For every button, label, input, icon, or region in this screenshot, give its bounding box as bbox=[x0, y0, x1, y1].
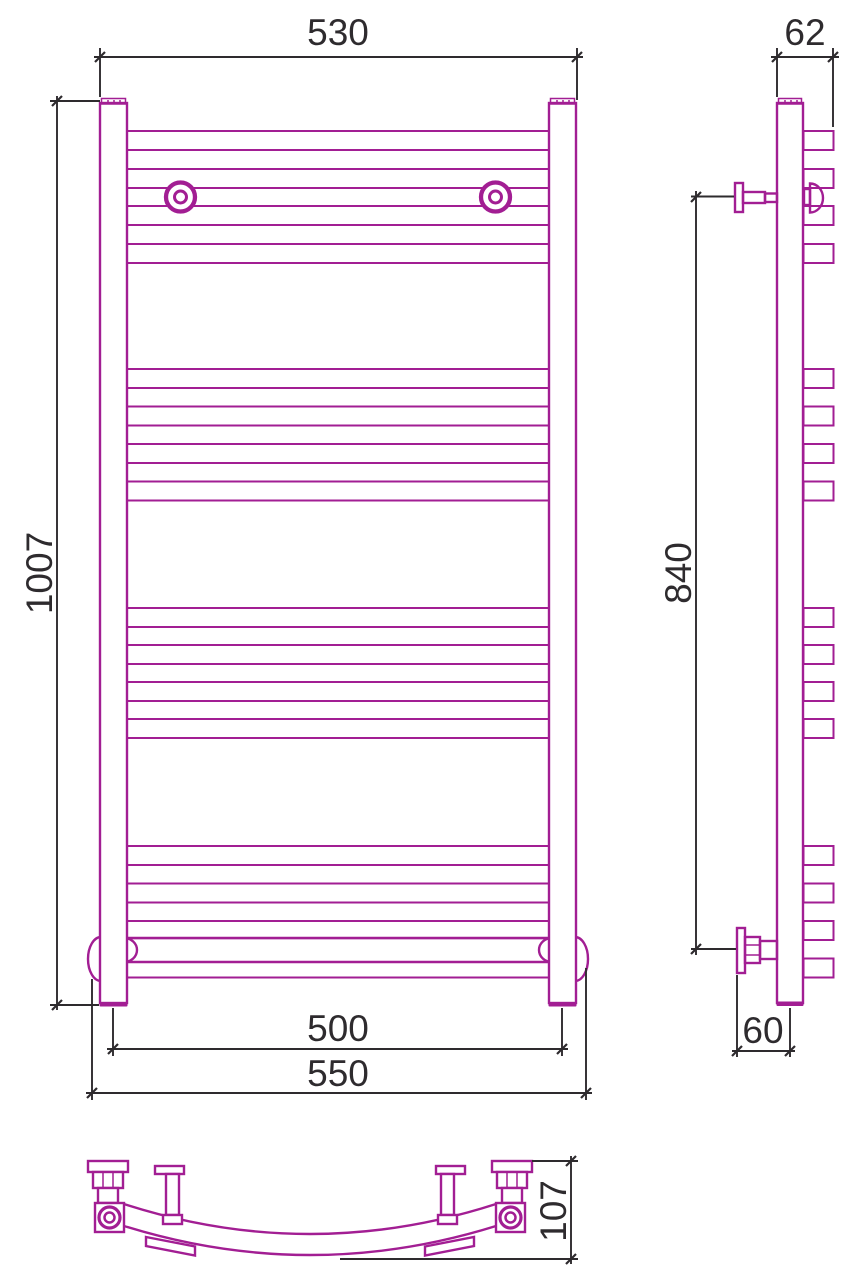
bottom-right-fitting bbox=[492, 1161, 532, 1232]
dimension-500-label: 500 bbox=[307, 1008, 369, 1049]
bottom-view bbox=[88, 1161, 532, 1256]
radiator-drawing: 530 1007 500 550 62 840 60 107 bbox=[0, 0, 853, 1280]
front-left-post-foot bbox=[100, 1002, 128, 1007]
front-left-post bbox=[100, 103, 127, 1003]
dimension-60-label: 60 bbox=[742, 1010, 783, 1051]
dimension-107-label: 107 bbox=[533, 1180, 574, 1242]
rung bbox=[804, 846, 834, 865]
front-view bbox=[88, 99, 588, 1007]
side-post-foot bbox=[777, 1002, 804, 1007]
dimension-840: 840 bbox=[658, 191, 736, 955]
wall-bracket-right bbox=[481, 183, 510, 212]
rung bbox=[127, 645, 549, 664]
rung bbox=[127, 682, 549, 701]
dimension-840-label: 840 bbox=[658, 542, 699, 604]
dimension-62-label: 62 bbox=[784, 12, 825, 53]
rung bbox=[804, 959, 834, 978]
rung bbox=[804, 482, 834, 501]
curved-rail-body bbox=[127, 939, 549, 961]
rung bbox=[804, 369, 834, 388]
bottom-left-fitting bbox=[88, 1161, 128, 1232]
dimension-500: 500 bbox=[107, 1008, 568, 1056]
rung bbox=[127, 482, 549, 501]
rung bbox=[127, 407, 549, 426]
rung bbox=[127, 244, 549, 263]
rung bbox=[804, 407, 834, 426]
dimension-1007-label: 1007 bbox=[19, 532, 60, 614]
rung bbox=[804, 608, 834, 627]
dimension-1007: 1007 bbox=[19, 96, 100, 1010]
rung bbox=[127, 719, 549, 738]
side-bottom-bracket bbox=[737, 928, 777, 973]
rung bbox=[804, 645, 834, 664]
rung bbox=[804, 719, 834, 738]
rung bbox=[804, 682, 834, 701]
rung bbox=[804, 884, 834, 903]
dimension-530: 530 bbox=[94, 12, 583, 100]
dimension-550-label: 550 bbox=[307, 1053, 369, 1094]
side-post bbox=[777, 103, 803, 1003]
rung bbox=[804, 169, 834, 188]
wall-bracket-left bbox=[166, 183, 195, 212]
rung bbox=[804, 131, 834, 150]
front-rungs bbox=[127, 131, 549, 978]
rung bbox=[127, 369, 549, 388]
rung bbox=[804, 244, 834, 263]
front-right-post-foot bbox=[549, 1002, 577, 1007]
dimension-530-label: 530 bbox=[307, 12, 369, 53]
rung bbox=[127, 884, 549, 903]
rung bbox=[804, 921, 834, 940]
rung bbox=[127, 846, 549, 865]
rung bbox=[127, 444, 549, 463]
side-rung-stubs bbox=[804, 131, 834, 978]
drawing-sheet: 530 1007 500 550 62 840 60 107 bbox=[0, 0, 853, 1280]
rung bbox=[127, 131, 549, 150]
rung bbox=[127, 608, 549, 627]
front-right-post bbox=[549, 103, 576, 1003]
side-view bbox=[735, 99, 834, 1007]
rung bbox=[804, 444, 834, 463]
